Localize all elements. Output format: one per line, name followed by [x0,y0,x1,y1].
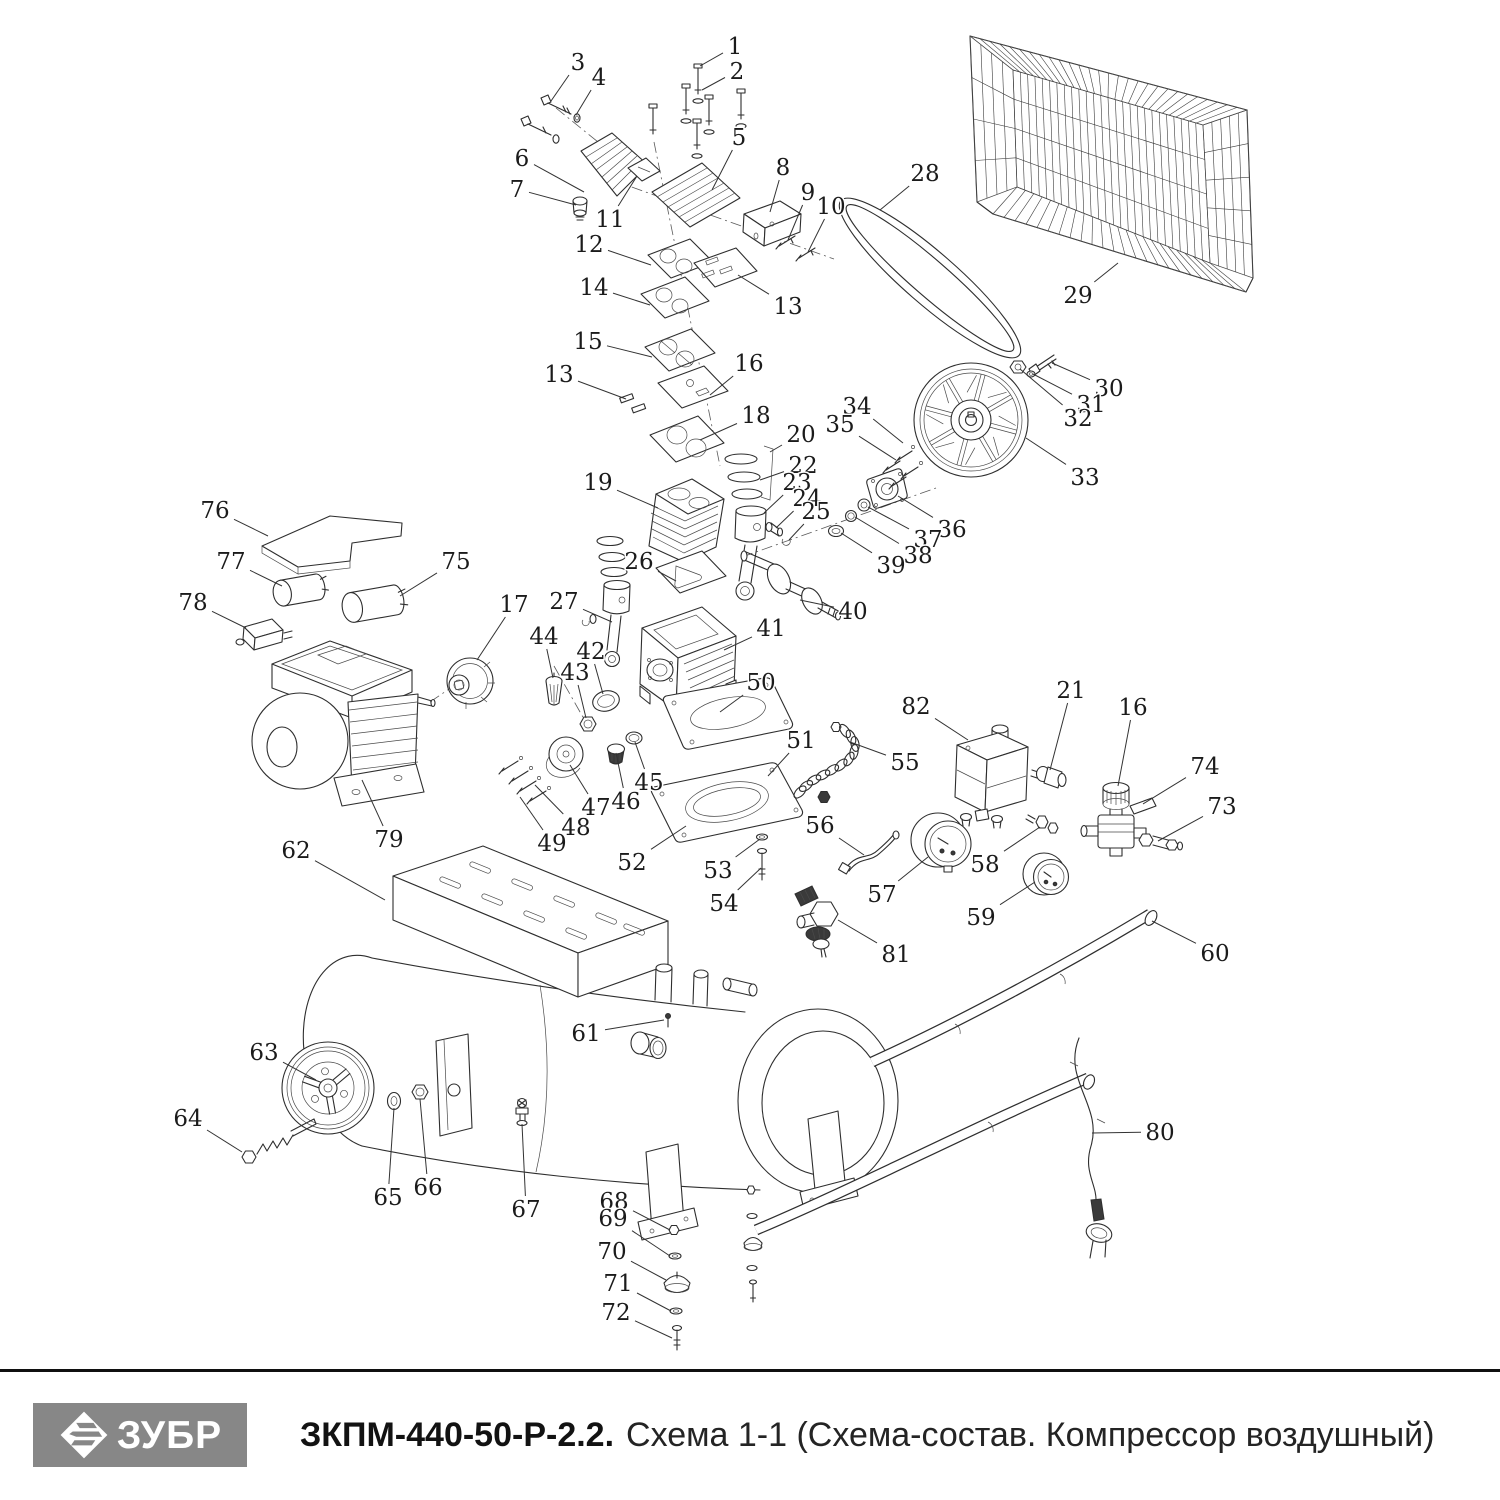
part-label-21: 21 [1056,678,1085,704]
capacitor-large [340,583,409,624]
leader-line-77 [250,570,282,586]
leader-line-60 [1152,921,1196,943]
part-label-62: 62 [281,838,310,864]
part-label-5: 5 [732,125,747,151]
part-label-43: 43 [560,660,589,686]
valve-block [743,201,815,261]
part-label-8: 8 [776,155,791,181]
part-label-29: 29 [1063,283,1092,309]
part-label-74: 74 [1190,754,1219,780]
part-label-9: 9 [801,180,816,206]
leader-line-72 [635,1321,672,1338]
leader-line-31 [1033,374,1072,394]
crankshaft [741,551,841,620]
part-label-32: 32 [1063,406,1092,432]
leader-line-53 [736,839,760,857]
part-label-80: 80 [1145,1120,1174,1146]
motor-cover-plate [262,516,402,574]
part-label-79: 79 [374,827,403,853]
wheel-nut [412,1085,428,1099]
part-label-66: 66 [413,1175,442,1201]
part-label-69: 69 [598,1206,627,1232]
regulator-fitting [1139,834,1183,850]
part-label-16: 16 [734,351,763,377]
flywheel [914,363,1028,477]
cylinder-head-large [652,163,740,227]
leader-line-66 [420,1099,427,1174]
leader-line-82 [935,718,968,740]
leader-line-36 [898,496,933,517]
leader-line-7 [529,192,576,205]
part-label-1: 1 [728,34,743,60]
bearing-cover [499,737,583,804]
part-label-78: 78 [178,590,207,616]
leader-line-56 [839,838,864,855]
leader-line-1 [700,53,723,66]
part-label-14: 14 [579,275,608,301]
leader-line-44 [547,649,553,678]
leader-line-10 [808,219,825,252]
part-label-82: 82 [901,694,930,720]
leader-line-76 [234,519,268,536]
leader-line-54 [738,868,761,890]
part-label-12: 12 [574,232,603,258]
part-label-76: 76 [200,498,229,524]
part-label-72: 72 [601,1300,630,1326]
part-label-15: 15 [573,329,602,355]
part-label-16: 16 [1118,695,1147,721]
leader-line-34 [873,419,903,443]
capacitor-small [271,572,330,607]
part-label-39: 39 [876,553,905,579]
part-label-13: 13 [773,294,802,320]
leader-line-16 [1118,720,1131,786]
leader-line-75 [400,573,437,596]
part-label-4: 4 [592,65,607,91]
part-label-75: 75 [441,549,470,575]
part-label-35: 35 [825,412,854,438]
leader-line-49 [520,797,543,830]
leader-line-57 [898,857,928,881]
leader-line-59 [1000,882,1035,905]
part-label-73: 73 [1207,794,1236,820]
leader-line-23 [764,495,783,513]
part-label-41: 41 [756,616,785,642]
unloader-pipe [839,831,899,874]
part-label-65: 65 [373,1185,402,1211]
flange-nut [580,717,596,731]
part-label-64: 64 [173,1106,202,1132]
part-label-28: 28 [910,161,939,187]
part-label-20: 20 [786,422,815,448]
leader-line-21 [1050,703,1068,770]
nipple-fitting [1026,815,1058,833]
leader-line-55 [850,742,886,755]
part-label-67: 67 [511,1197,540,1223]
part-label-10: 10 [816,194,845,220]
leader-line-80 [1092,1132,1141,1133]
cylinder-gasket [656,551,726,593]
leader-line-70 [631,1261,666,1280]
part-label-40: 40 [838,599,867,625]
leader-line-35 [859,436,896,460]
leader-line-78 [212,611,246,628]
brand-diamond-icon [58,1409,110,1461]
schema-subtitle: Схема 1-1 (Схема-состав. Компрессор возд… [626,1416,1434,1455]
part-label-56: 56 [805,813,834,839]
leader-line-30 [1052,363,1090,380]
leader-line-13 [738,275,769,294]
leader-line-67 [522,1124,525,1196]
part-label-61: 61 [571,1021,600,1047]
leader-line-27 [583,609,612,622]
motor-pulley [447,658,495,709]
footer-divider [0,1369,1500,1372]
model-code: ЗКПМ-440-50-Р-2.2. [300,1416,614,1455]
motor [252,641,435,806]
part-label-7: 7 [510,177,525,203]
brand-logo: ЗУБР [33,1403,247,1467]
part-label-11: 11 [595,207,624,233]
leader-line-4 [576,90,591,115]
wheel [282,1042,374,1134]
part-label-13: 13 [544,362,573,388]
part-label-38: 38 [903,543,932,569]
leader-line-13 [578,381,626,399]
drain-valve [516,1099,528,1126]
sheet-title: ЗКПМ-440-50-Р-2.2. Схема 1-1 (Схема-сост… [300,1403,1434,1467]
leader-line-37 [868,507,909,529]
part-label-49: 49 [537,831,566,857]
leader-line-32 [1020,369,1063,405]
bearing-flange-set [829,445,923,536]
leader-line-29 [1094,263,1118,282]
part-label-71: 71 [603,1271,632,1297]
flange-ring [590,688,621,714]
power-cord [1070,1038,1114,1258]
outlet-fitting [1031,767,1066,789]
leader-line-42 [595,664,603,694]
part-label-57: 57 [867,882,896,908]
leader-line-2 [702,78,725,91]
leader-line-61 [605,1020,664,1030]
leader-line-62 [315,861,385,900]
parts-diagram-page: 1234567891011121314151316181920222324252… [0,0,1500,1500]
part-label-17: 17 [499,592,528,618]
leader-line-12 [608,250,651,265]
leader-line-73 [1158,816,1203,841]
leader-line-33 [1026,438,1066,464]
part-label-58: 58 [970,852,999,878]
part-label-63: 63 [249,1040,278,1066]
part-label-6: 6 [515,146,530,172]
side-screws [521,95,580,143]
part-label-70: 70 [597,1239,626,1265]
leader-line-81 [838,920,877,943]
part-label-19: 19 [583,470,612,496]
leader-line-24 [776,511,794,528]
part-label-55: 55 [890,750,919,776]
leader-line-58 [1004,827,1040,851]
flywheel-fasteners [1010,355,1056,377]
leader-line-19 [617,490,658,508]
foot-set-a [664,1226,690,1351]
leader-line-22 [760,472,784,480]
part-label-81: 81 [881,942,910,968]
o-ring [626,732,642,744]
part-label-26: 26 [624,549,653,575]
leader-line-3 [551,75,569,101]
part-label-54: 54 [709,891,738,917]
part-label-18: 18 [741,403,770,429]
part-label-51: 51 [786,728,815,754]
leader-line-71 [637,1293,671,1311]
leader-line-28 [880,186,909,210]
leader-line-38 [855,517,899,544]
part-label-50: 50 [746,670,775,696]
tank [303,955,898,1193]
part-label-3: 3 [571,50,586,76]
breather-plug [573,197,587,220]
leader-line-43 [578,685,586,718]
wheel-washer [388,1093,401,1110]
part-label-2: 2 [730,59,745,85]
leader-line-6 [534,165,584,192]
part-label-33: 33 [1070,465,1099,491]
leader-line-65 [389,1108,394,1184]
cylinder-block [649,479,724,562]
part-label-53: 53 [703,858,732,884]
foot-set-b [744,1186,762,1302]
exploded-diagram: 1234567891011121314151316181920222324252… [0,0,1500,1370]
belt-guard [970,36,1253,292]
part-label-59: 59 [966,905,995,931]
leader-line-45 [635,742,645,769]
motor-switch [236,619,292,650]
pressure-switch [955,725,1028,828]
leader-line-64 [207,1130,242,1152]
part-label-46: 46 [611,789,640,815]
part-label-60: 60 [1200,941,1229,967]
check-valve [795,886,838,957]
part-label-25: 25 [801,499,830,525]
part-label-44: 44 [529,624,558,650]
leader-line-17 [477,617,505,660]
gauge-small [1023,853,1069,895]
leader-line-74 [1143,778,1186,804]
part-label-52: 52 [617,850,646,876]
part-label-77: 77 [216,549,245,575]
brand-name: ЗУБР [117,1416,222,1455]
part-label-27: 27 [549,589,578,615]
leader-line-39 [841,533,872,553]
